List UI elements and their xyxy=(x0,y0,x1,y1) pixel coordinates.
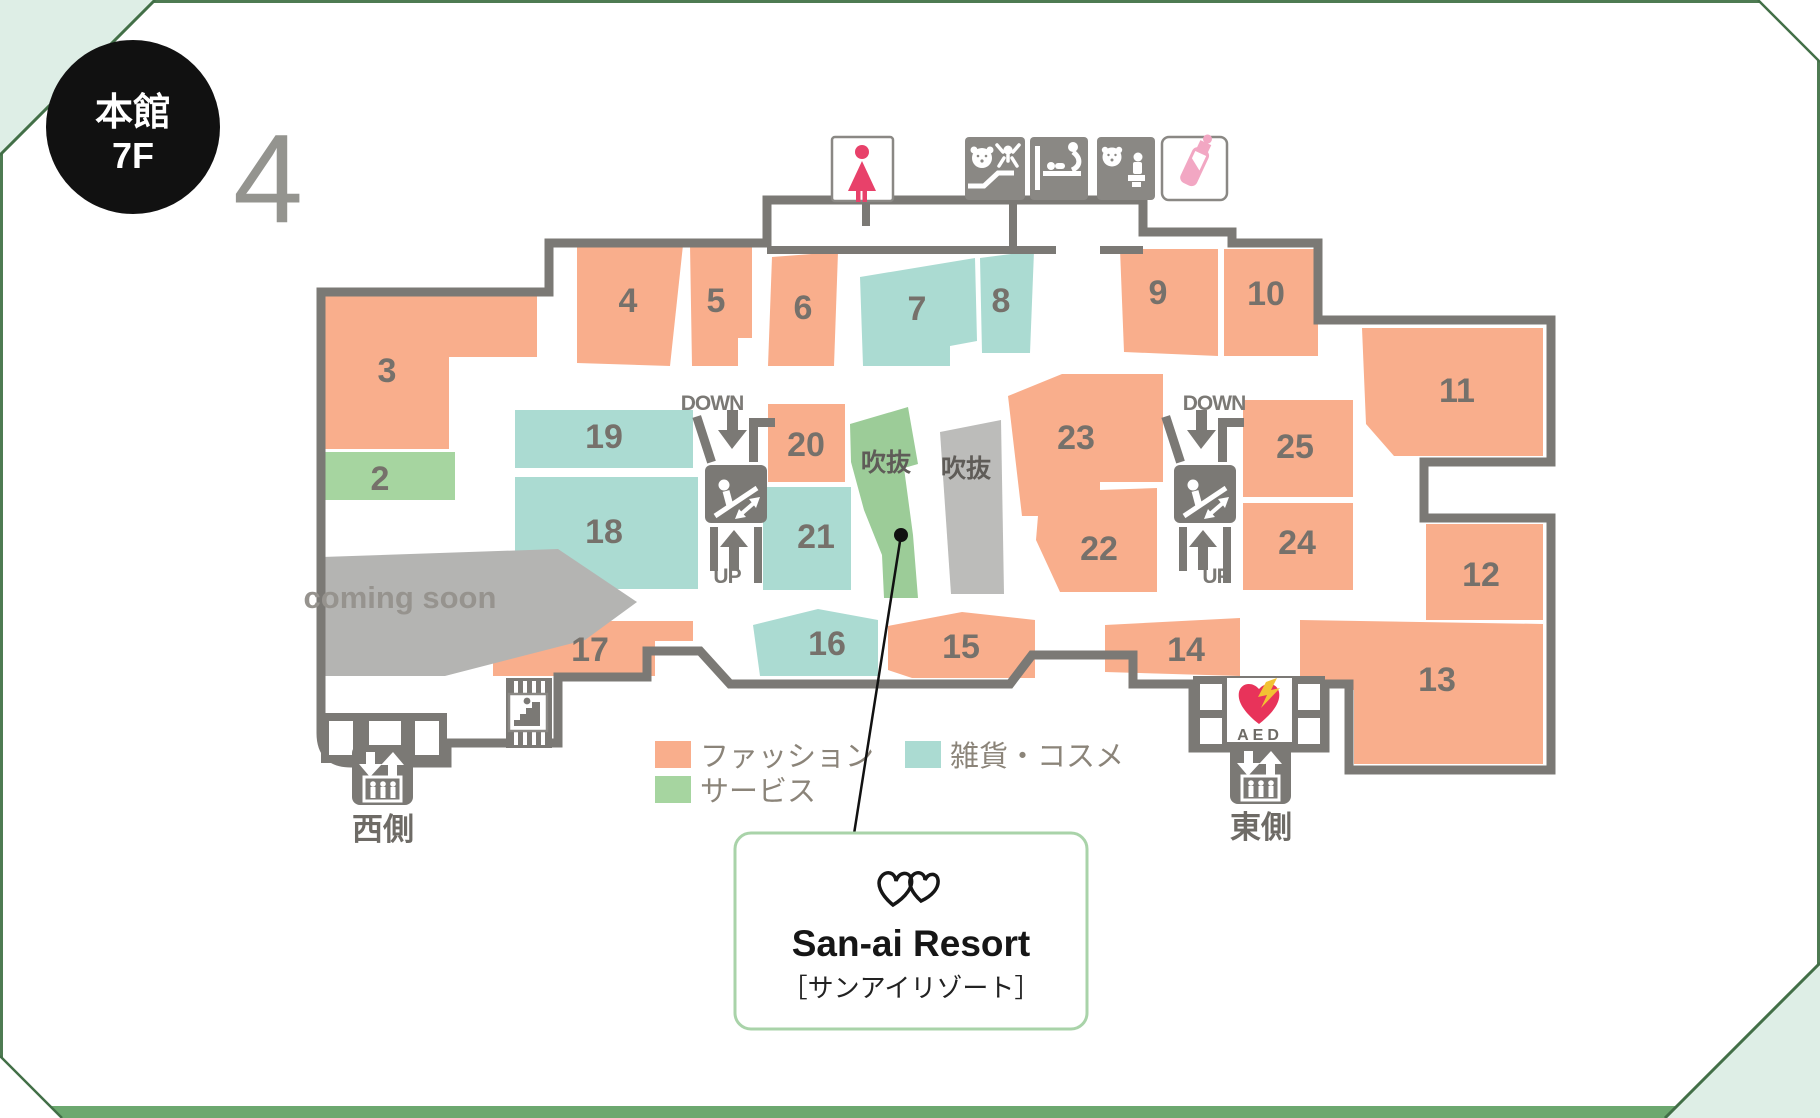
zone-2-label: 2 xyxy=(371,460,390,498)
atrium-right-area xyxy=(940,420,1004,594)
escalator-west-icon xyxy=(692,410,775,583)
coming-soon-label: coming soon xyxy=(304,580,497,615)
bottom-green-bar xyxy=(0,1106,1820,1118)
legend-goods-swatch xyxy=(905,741,941,768)
zone-24-label: 24 xyxy=(1278,524,1316,562)
floor-number: 7F xyxy=(112,135,154,176)
zone-18-label: 18 xyxy=(585,513,623,551)
elevator-east-label: 東側 xyxy=(1230,810,1292,845)
atrium-left-label: 吹抜 xyxy=(861,449,912,477)
facility-icons xyxy=(832,131,1227,202)
zone-16-label: 16 xyxy=(808,625,846,663)
zone-21-label: 21 xyxy=(797,518,835,556)
escalator-west-up-label: UP xyxy=(713,565,741,588)
zone-17-label: 17 xyxy=(571,631,609,669)
zone-7-label: 7 xyxy=(908,290,927,328)
escalator-west-down-label: DOWN xyxy=(681,392,744,415)
zone-5-label: 5 xyxy=(707,282,726,320)
nursing-bottle-icon xyxy=(1162,131,1227,200)
legend: ファッション サービス 雑貨・コスメ xyxy=(655,740,1124,808)
legend-service-label: サービス xyxy=(700,776,816,808)
zone-19-label: 19 xyxy=(585,418,623,456)
womens-restroom-icon xyxy=(832,137,893,202)
escalator-east-icon xyxy=(1161,410,1244,583)
floor-map-page: 本館 7F 4 xyxy=(0,0,1820,1118)
zone-15-label: 15 xyxy=(942,628,980,666)
store-callout-card[interactable]: San-ai Resort ［サンアイリゾート］ xyxy=(735,833,1087,1029)
zone-12-label: 12 xyxy=(1462,556,1500,594)
elevator-west-icon xyxy=(352,745,413,805)
corridor-walls xyxy=(767,200,1143,250)
legend-goods-label: 雑貨・コスメ xyxy=(950,740,1124,773)
floor-watermark: 4 xyxy=(233,108,303,249)
elevator-west-label: 西側 xyxy=(352,812,414,847)
child-toilet-icon xyxy=(1097,137,1155,200)
legend-service-swatch xyxy=(655,776,691,803)
zone-4-label: 4 xyxy=(619,282,638,320)
store-name-en: San-ai Resort xyxy=(792,923,1031,964)
zone-25-label: 25 xyxy=(1276,428,1314,466)
baby-changing-icon xyxy=(1030,137,1088,200)
aed-label: AED xyxy=(1237,727,1283,744)
zone-10-label: 10 xyxy=(1247,275,1285,313)
legend-fashion-label: ファッション xyxy=(700,741,874,773)
zone-6-label: 6 xyxy=(794,289,813,327)
elevator-east-icon xyxy=(1230,744,1291,804)
zone-13-label: 13 xyxy=(1418,661,1456,699)
escalator-east-up-label: UP xyxy=(1202,565,1230,588)
kids-space-icon xyxy=(965,137,1025,200)
zone-14-label: 14 xyxy=(1167,631,1205,669)
zone-9-area[interactable] xyxy=(1120,249,1218,356)
zone-9-label: 9 xyxy=(1149,274,1168,312)
floor-map-canvas: 本館 7F 4 xyxy=(0,0,1820,1118)
store-name-jp: ［サンアイリゾート］ xyxy=(782,973,1041,1003)
zone-11-label: 11 xyxy=(1439,372,1475,410)
aed-bay: AED xyxy=(1193,676,1325,748)
legend-fashion-swatch xyxy=(655,741,691,768)
zone-3-area[interactable] xyxy=(323,294,537,449)
atrium-right-label: 吹抜 xyxy=(941,455,992,483)
stairs-bay xyxy=(506,678,552,748)
escalator-east-down-label: DOWN xyxy=(1183,392,1246,415)
zone-23-label: 23 xyxy=(1057,419,1095,457)
building-name: 本館 xyxy=(95,92,171,134)
zone-8-label: 8 xyxy=(992,282,1011,320)
zone-3-label: 3 xyxy=(378,352,397,390)
zone-20-label: 20 xyxy=(787,426,825,464)
zone-22-label: 22 xyxy=(1080,530,1118,568)
atrium-left-area xyxy=(850,407,918,598)
